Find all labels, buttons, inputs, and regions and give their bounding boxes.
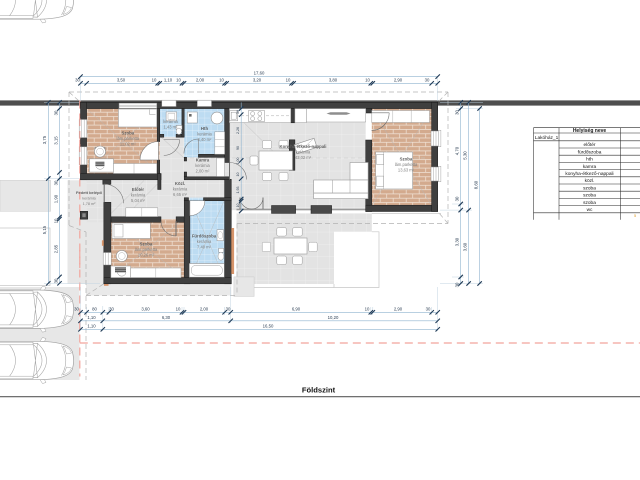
svg-text:3,30: 3,30 [455,237,460,246]
svg-text:10: 10 [365,78,370,83]
svg-text:1,10: 1,10 [87,315,96,320]
svg-text:1,93: 1,93 [236,187,240,194]
svg-text:kerámia: kerámia [173,186,188,191]
svg-text:Fedett belépő: Fedett belépő [76,190,103,195]
svg-text:30: 30 [455,196,460,201]
svg-text:kerámia: kerámia [82,196,96,200]
svg-text:10: 10 [236,204,240,208]
svg-text:30: 30 [53,110,58,115]
svg-text:90: 90 [236,146,240,150]
svg-text:konyha-étkező-nappali: konyha-étkező-nappali [565,171,613,177]
svg-text:szoba: szoba [583,185,596,191]
svg-text:30: 30 [425,78,430,83]
svg-text:Szoba: Szoba [140,242,153,247]
svg-text:2,26: 2,26 [236,127,240,134]
svg-text:16,50: 16,50 [263,324,274,329]
svg-text:Helyiség neve: Helyiség neve [573,128,607,134]
svg-text:10,26 m²: 10,26 m² [138,252,155,257]
svg-text:3,80: 3,80 [329,78,338,83]
svg-text:30: 30 [455,282,460,287]
svg-text:3,75: 3,75 [42,135,47,144]
svg-text:Lakóház_1: Lakóház_1 [535,135,559,141]
svg-text:13,63 m²: 13,63 m² [398,167,415,172]
svg-text:10: 10 [286,78,291,83]
svg-text:1,78 m²: 1,78 m² [83,202,97,206]
svg-text:2,00: 2,00 [200,307,209,312]
svg-text:5,30: 5,30 [463,151,468,160]
svg-text:2,00 m²: 2,00 m² [196,168,211,173]
svg-text:30: 30 [75,78,80,83]
svg-text:10: 10 [53,218,58,223]
svg-text:2,00: 2,00 [196,78,205,83]
svg-text:2,90: 2,90 [394,78,403,83]
svg-text:10: 10 [365,307,370,312]
svg-text:10: 10 [176,307,181,312]
svg-text:2,85: 2,85 [53,244,58,253]
svg-text:30: 30 [426,307,431,312]
svg-text:wc: wc [587,208,593,213]
svg-text:1,43 m²: 1,43 m² [164,125,179,130]
svg-text:1,10: 1,10 [164,78,173,83]
svg-text:Hth: Hth [201,126,209,131]
svg-text:Földszint: Földszint [302,385,336,394]
svg-text:10: 10 [152,78,157,83]
svg-text:5,04 m²: 5,04 m² [131,198,146,203]
svg-text:10: 10 [176,78,181,83]
svg-text:30: 30 [53,180,58,185]
svg-text:10: 10 [219,78,224,83]
svg-text:30: 30 [226,307,231,312]
svg-text:Kamra: Kamra [196,158,210,163]
svg-text:kerámia: kerámia [131,192,146,197]
svg-text:kerámia: kerámia [195,163,210,168]
svg-text:30: 30 [109,307,114,312]
svg-text:Konyha-étkező-nappali: Konyha-étkező-nappali [279,144,326,149]
svg-text:Szoba: Szoba [121,131,134,136]
svg-text:1,00: 1,00 [236,158,240,165]
svg-text:Közl.: Közl. [175,181,185,186]
svg-text:10: 10 [236,173,240,177]
svg-text:8,60: 8,60 [474,180,479,189]
svg-text:1,10: 1,10 [87,324,96,329]
svg-text:6,65 m²: 6,65 m² [173,192,188,197]
svg-text:30: 30 [53,278,58,283]
svg-text:17,60: 17,60 [254,70,265,75]
svg-text:szoba: szoba [583,200,596,206]
svg-text:3,60: 3,60 [141,307,150,312]
svg-text:30: 30 [74,307,79,312]
svg-text:30: 30 [455,110,460,115]
svg-text:7,40 m²: 7,40 m² [197,244,212,249]
svg-text:előtér: előtér [584,142,596,148]
svg-text:kerámia: kerámia [197,239,212,244]
svg-text:Fürdőszoba: Fürdőszoba [192,234,217,239]
svg-text:3,20: 3,20 [253,78,262,83]
svg-text:kerámia: kerámia [296,149,311,154]
svg-text:kamra: kamra [583,164,597,170]
svg-text:kerámia: kerámia [163,119,178,124]
svg-text:lám.parketta: lám.parketta [395,162,418,167]
svg-text:4,70: 4,70 [455,146,460,155]
svg-text:3,50: 3,50 [117,78,126,83]
svg-text:5,15: 5,15 [42,225,47,234]
svg-text:6,90: 6,90 [292,307,301,312]
svg-text:4,40 m²: 4,40 m² [198,137,213,142]
svg-text:6,30: 6,30 [162,315,171,320]
svg-text:kerámia: kerámia [197,131,212,136]
svg-text:közl.: közl. [585,178,595,184]
svg-text:fürdőszoba: fürdőszoba [578,149,602,155]
svg-text:lám.parketta: lám.parketta [135,247,158,252]
svg-text:80: 80 [92,307,97,312]
svg-text:2,90: 2,90 [394,307,403,312]
svg-text:3,60: 3,60 [463,242,468,251]
svg-text:1,90: 1,90 [53,194,58,203]
svg-text:11,02 m²: 11,02 m² [120,141,136,146]
svg-text:Előtér: Előtér [132,187,145,192]
svg-text:3,15: 3,15 [53,136,58,145]
svg-text:30: 30 [236,110,240,114]
svg-text:szoba: szoba [583,193,596,199]
svg-text:43,02 m²: 43,02 m² [295,155,312,160]
svg-text:10,20: 10,20 [328,315,339,320]
svg-text:lám.parketta: lám.parketta [117,136,140,141]
svg-text:Szoba: Szoba [400,157,413,162]
svg-text:hth: hth [586,157,593,163]
